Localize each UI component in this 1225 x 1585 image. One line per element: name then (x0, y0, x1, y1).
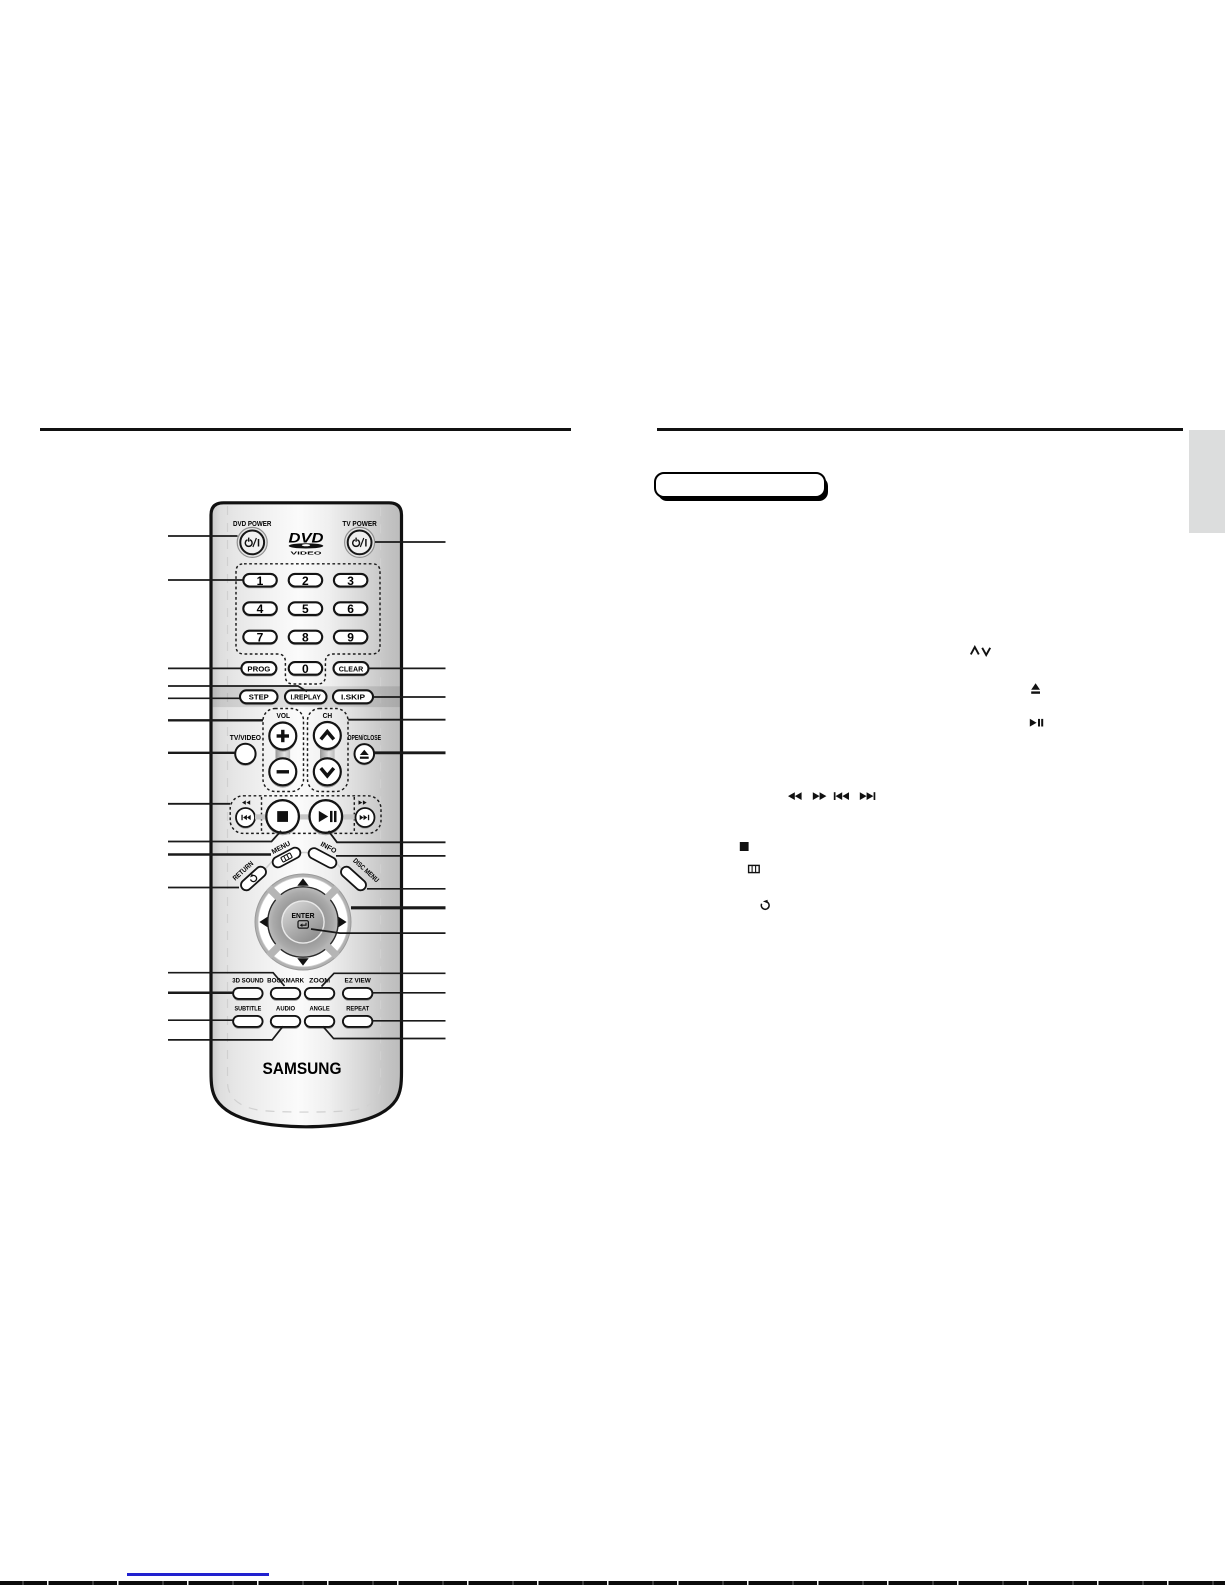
svg-text:TV/VIDEO: TV/VIDEO (230, 735, 262, 742)
svg-text:6: 6 (347, 602, 354, 616)
svg-text:3: 3 (347, 574, 354, 588)
svg-text:5: 5 (302, 602, 309, 616)
svg-text:EZ VIEW: EZ VIEW (345, 978, 372, 985)
svg-text:BOOKMARK: BOOKMARK (267, 978, 304, 985)
svg-text:I.SKIP: I.SKIP (341, 695, 365, 702)
svg-text:SUBTITLE: SUBTITLE (234, 1006, 261, 1013)
svg-text:VIDEO: VIDEO (291, 551, 323, 556)
svg-text:I.REPLAY: I.REPLAY (290, 695, 321, 702)
svg-text:2: 2 (302, 574, 309, 588)
svg-text:SAMSUNG: SAMSUNG (263, 1059, 342, 1078)
svg-text:OPEN/CLOSE: OPEN/CLOSE (348, 735, 382, 742)
svg-text:TV POWER: TV POWER (342, 519, 377, 528)
svg-text:CLEAR: CLEAR (339, 666, 364, 673)
svg-text:DVD POWER: DVD POWER (233, 519, 272, 528)
svg-text:1: 1 (257, 574, 264, 588)
svg-text:REPEAT: REPEAT (346, 1006, 369, 1013)
svg-text:8: 8 (302, 631, 309, 645)
svg-text:ANGLE: ANGLE (309, 1006, 330, 1013)
svg-text:VOL: VOL (277, 713, 291, 720)
svg-text:ENTER: ENTER (292, 911, 315, 920)
svg-text:CH: CH (323, 713, 333, 720)
svg-text:4: 4 (257, 602, 264, 616)
svg-text:9: 9 (347, 631, 354, 645)
svg-text:STEP: STEP (249, 695, 269, 702)
svg-text:7: 7 (257, 631, 264, 645)
svg-text:0: 0 (302, 662, 309, 676)
svg-text:AUDIO: AUDIO (276, 1006, 295, 1013)
svg-text:PROG: PROG (247, 666, 271, 673)
svg-text:3D SOUND: 3D SOUND (232, 978, 264, 985)
